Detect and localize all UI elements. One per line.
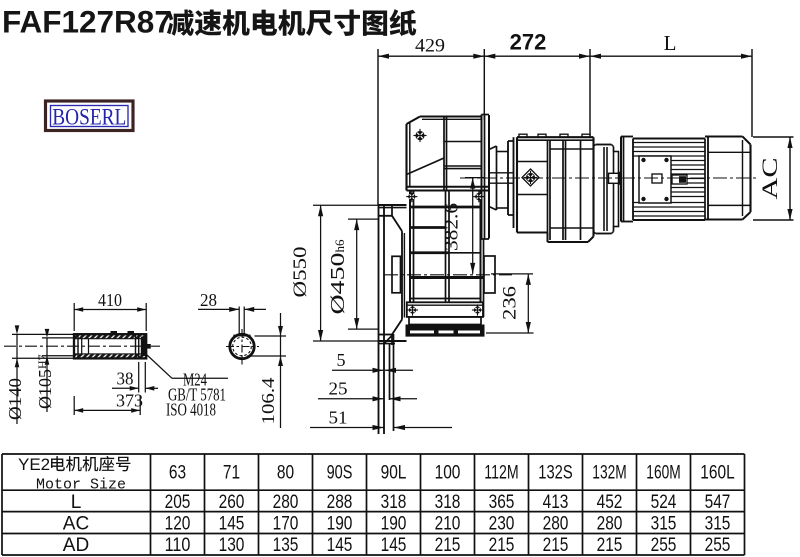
svg-text:90L: 90L xyxy=(381,463,407,484)
svg-text:280: 280 xyxy=(597,514,623,535)
svg-text:120: 120 xyxy=(165,514,191,535)
svg-text:112M: 112M xyxy=(484,463,518,484)
svg-text:215: 215 xyxy=(543,535,569,556)
svg-text:145: 145 xyxy=(381,535,407,556)
svg-text:452: 452 xyxy=(597,492,623,513)
svg-text:255: 255 xyxy=(651,535,677,556)
svg-text:255: 255 xyxy=(705,535,731,556)
svg-text:145: 145 xyxy=(219,514,245,535)
svg-text:ISO 4018: ISO 4018 xyxy=(166,400,216,420)
svg-text:215: 215 xyxy=(489,535,515,556)
svg-text:280: 280 xyxy=(273,492,299,513)
svg-text:260: 260 xyxy=(219,492,245,513)
svg-text:BOSERL: BOSERL xyxy=(52,105,126,130)
svg-text:365: 365 xyxy=(489,492,515,513)
svg-text:L: L xyxy=(71,492,82,513)
svg-text:25: 25 xyxy=(329,379,348,399)
svg-text:28: 28 xyxy=(200,290,217,310)
svg-text:170: 170 xyxy=(273,514,299,535)
svg-text:215: 215 xyxy=(435,535,461,556)
svg-text:210: 210 xyxy=(435,514,461,535)
svg-text:429: 429 xyxy=(415,36,445,57)
svg-text:160L: 160L xyxy=(700,463,734,484)
svg-text:63: 63 xyxy=(169,463,186,484)
svg-text:130: 130 xyxy=(219,535,245,556)
svg-text:382.6: 382.6 xyxy=(442,203,463,251)
svg-text:51: 51 xyxy=(329,408,348,428)
svg-text:230: 230 xyxy=(489,514,515,535)
svg-text:90S: 90S xyxy=(327,463,353,484)
svg-text:315: 315 xyxy=(705,514,731,535)
svg-text:38: 38 xyxy=(117,369,134,389)
svg-text:AC: AC xyxy=(63,514,89,535)
svg-text:318: 318 xyxy=(435,492,461,513)
svg-text:373: 373 xyxy=(116,391,143,411)
svg-text:Ø140: Ø140 xyxy=(5,378,25,420)
svg-text:80: 80 xyxy=(277,463,294,484)
svg-text:5: 5 xyxy=(337,350,346,370)
svg-text:135: 135 xyxy=(273,535,299,556)
svg-text:280: 280 xyxy=(543,514,569,535)
svg-text:Motor Size: Motor Size xyxy=(36,477,126,494)
svg-text:190: 190 xyxy=(381,514,407,535)
svg-text:L: L xyxy=(664,31,677,55)
svg-text:236: 236 xyxy=(500,286,521,320)
svg-text:145: 145 xyxy=(327,535,353,556)
svg-text:272: 272 xyxy=(510,30,547,55)
svg-text:410: 410 xyxy=(98,290,122,310)
svg-text:315: 315 xyxy=(651,514,677,535)
svg-text:106.4: 106.4 xyxy=(258,378,278,425)
svg-text:132S: 132S xyxy=(538,463,572,484)
svg-text:547: 547 xyxy=(705,492,731,513)
svg-text:AC: AC xyxy=(757,158,782,200)
svg-text:160M: 160M xyxy=(646,463,680,484)
svg-text:288: 288 xyxy=(327,492,353,513)
svg-text:FAF127R87: FAF127R87 xyxy=(2,4,172,40)
svg-text:YE2: YE2 xyxy=(18,455,50,474)
svg-text:132M: 132M xyxy=(592,463,626,484)
svg-text:413: 413 xyxy=(543,492,569,513)
svg-text:110: 110 xyxy=(165,535,191,556)
svg-text:100: 100 xyxy=(435,463,461,484)
svg-text:AD: AD xyxy=(63,535,89,556)
svg-text:524: 524 xyxy=(651,492,677,513)
svg-text:215: 215 xyxy=(597,535,623,556)
svg-text:318: 318 xyxy=(381,492,407,513)
svg-text:205: 205 xyxy=(165,492,191,513)
svg-text:Ø550: Ø550 xyxy=(290,247,311,298)
svg-text:71: 71 xyxy=(223,463,240,484)
svg-text:190: 190 xyxy=(327,514,353,535)
